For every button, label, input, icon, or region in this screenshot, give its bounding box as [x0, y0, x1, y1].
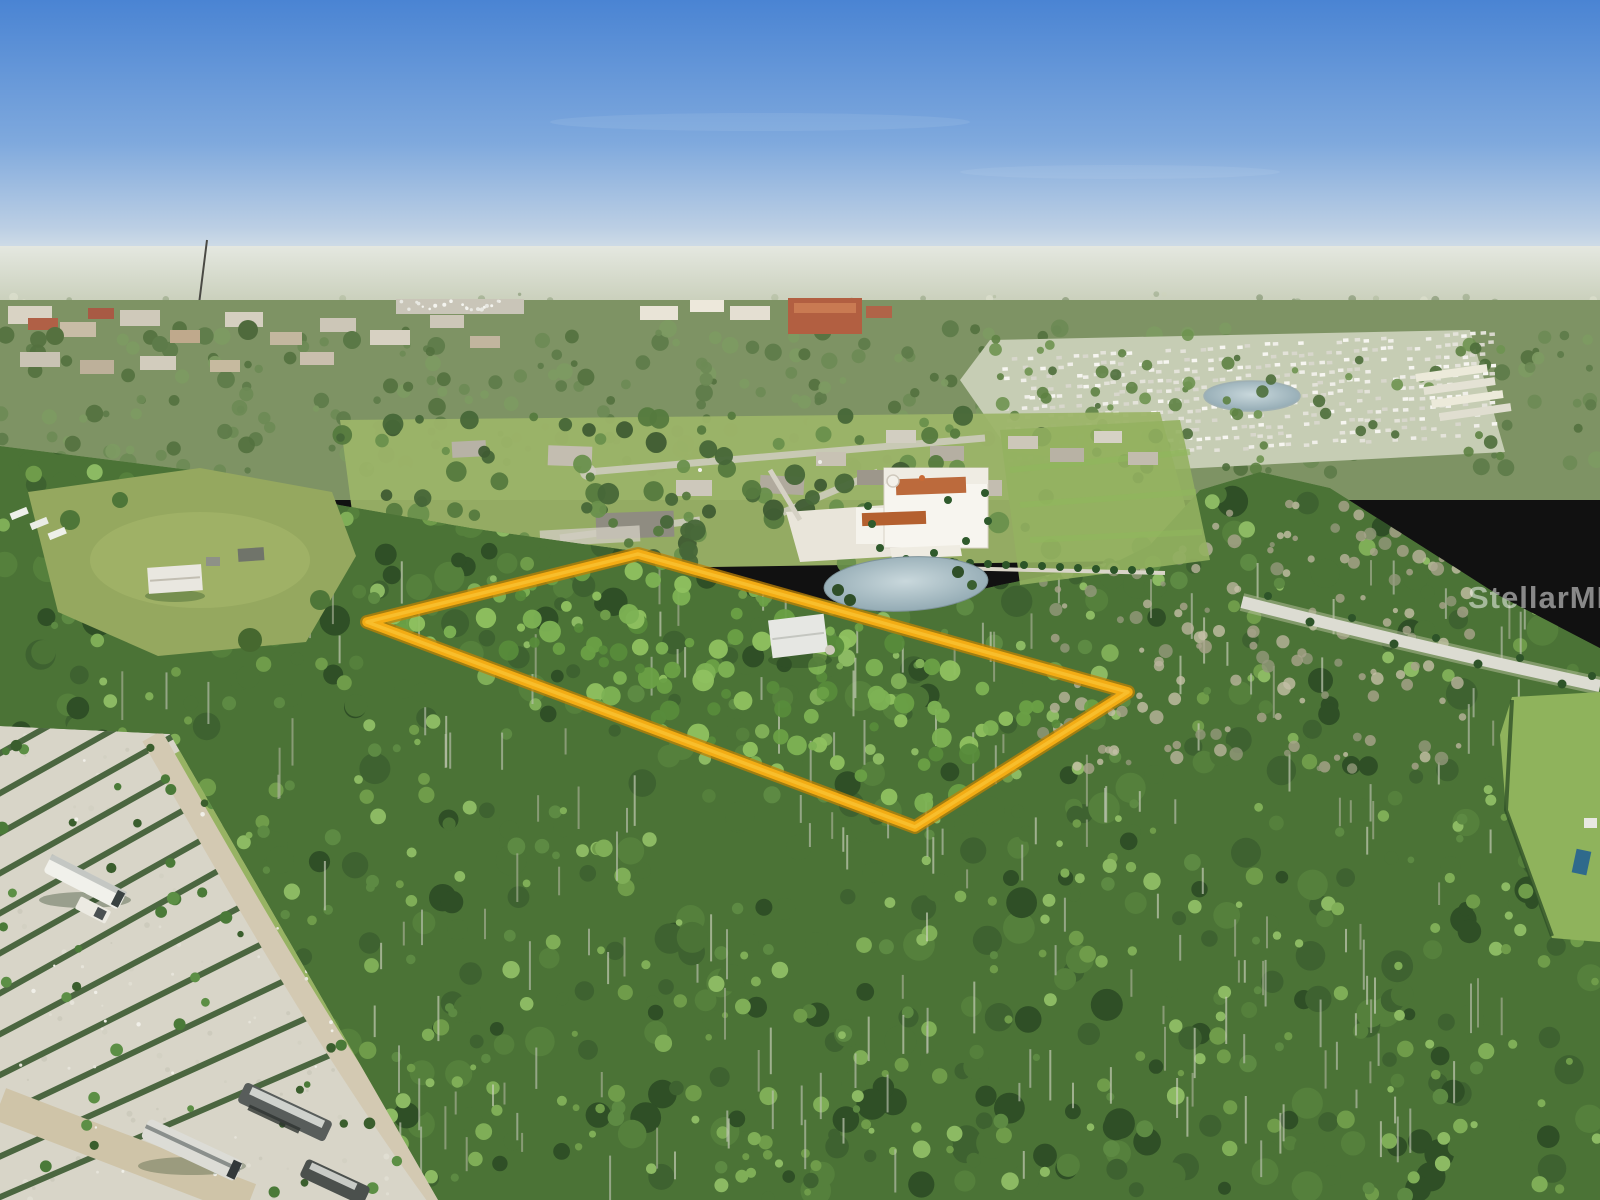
car: [818, 460, 822, 464]
cloud-wisp: [550, 113, 970, 131]
dome: [887, 475, 899, 487]
dome-cap: [919, 475, 925, 481]
red-roof: [88, 308, 114, 319]
aerial-scene: StellarMLS: [0, 0, 1600, 1200]
car: [698, 468, 702, 472]
parcel-drive: [825, 645, 835, 655]
sky: [0, 0, 1600, 260]
mls-watermark: StellarMLS: [1468, 580, 1600, 615]
aerial-property-photo: StellarMLS: [0, 0, 1600, 1200]
tile-roof: [896, 477, 967, 495]
small-shed: [206, 557, 220, 566]
parcel-house: [768, 614, 828, 659]
shed: [238, 547, 265, 562]
distant-parking-lot: [396, 299, 524, 314]
barn: [147, 564, 203, 594]
community-pond: [1204, 381, 1300, 411]
pool-shed: [1584, 818, 1597, 828]
cloud-wisp: [960, 165, 1280, 179]
